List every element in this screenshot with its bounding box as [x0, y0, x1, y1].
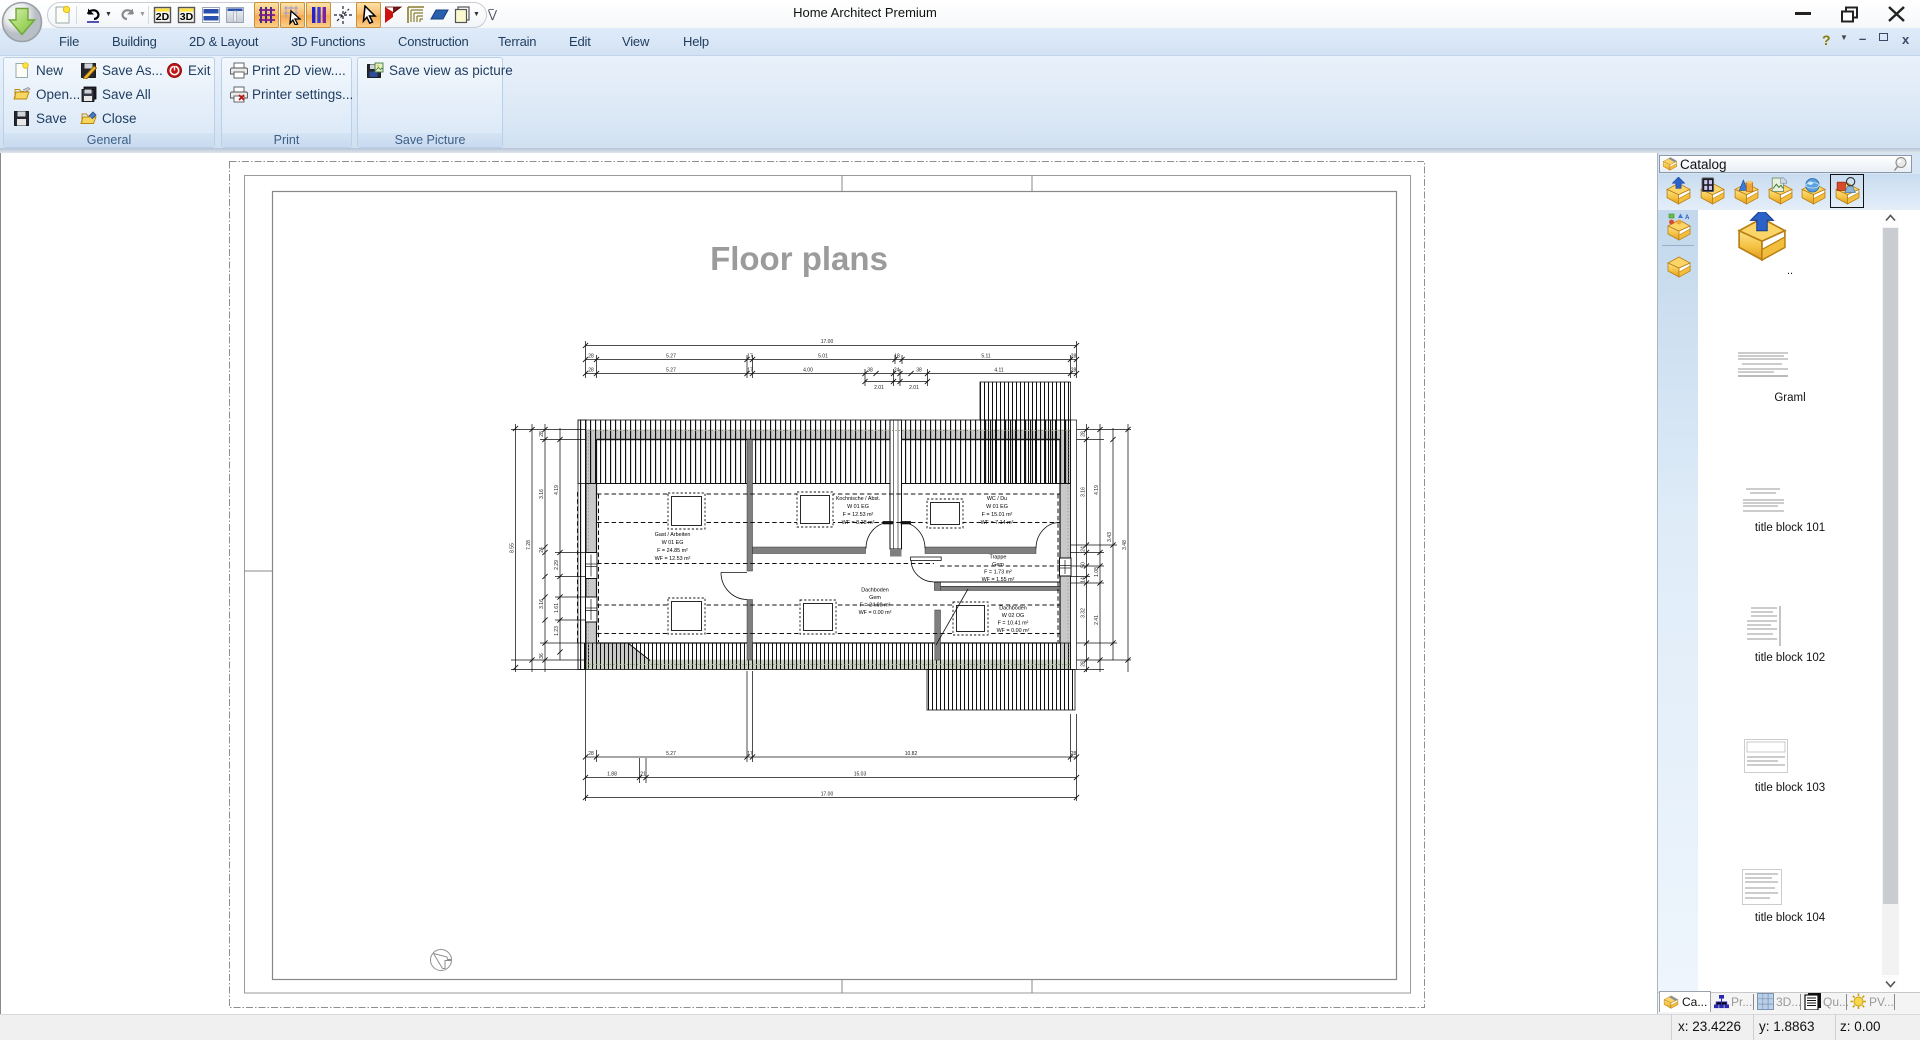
svg-text:4.11: 4.11: [994, 368, 1004, 374]
svg-text:24: 24: [539, 547, 545, 553]
svg-text:17: 17: [747, 368, 753, 374]
svg-text:WF = 1.55 m²: WF = 1.55 m²: [982, 577, 1015, 583]
svg-text:Dachboden: Dachboden: [999, 606, 1027, 612]
svg-text:WC / Du: WC / Du: [987, 496, 1007, 502]
svg-text:5.27: 5.27: [666, 354, 676, 360]
svg-text:2.01: 2.01: [909, 385, 919, 391]
svg-text:28: 28: [588, 354, 594, 360]
svg-text:2.01: 2.01: [874, 385, 884, 391]
svg-text:4.19: 4.19: [554, 485, 560, 495]
svg-text:18: 18: [894, 354, 900, 360]
svg-text:24: 24: [894, 368, 900, 374]
svg-text:3.16: 3.16: [1081, 487, 1087, 497]
svg-text:3.16: 3.16: [539, 599, 545, 609]
svg-text:F = 24.98 m²: F = 24.98 m²: [860, 603, 891, 609]
svg-text:1.61: 1.61: [554, 603, 560, 613]
svg-text:3.43: 3.43: [1107, 532, 1113, 542]
svg-text:F = 24.85 m²: F = 24.85 m²: [657, 548, 688, 554]
svg-text:W 01 EG: W 01 EG: [662, 540, 684, 546]
svg-text:24: 24: [1081, 546, 1087, 552]
svg-text:10.82: 10.82: [905, 751, 918, 757]
svg-text:28: 28: [1071, 354, 1077, 360]
svg-text:Kochnische / Abst.: Kochnische / Abst.: [836, 496, 880, 502]
svg-text:38: 38: [867, 368, 873, 374]
svg-text:38: 38: [916, 368, 922, 374]
svg-text:F = 12.53 m²: F = 12.53 m²: [843, 512, 874, 518]
svg-text:2D: 2D: [156, 11, 170, 23]
svg-text:W 01 EG: W 01 EG: [847, 504, 869, 510]
svg-text:3D: 3D: [180, 11, 194, 23]
svg-text:WF = 8.28 m²: WF = 8.28 m²: [842, 520, 875, 526]
svg-text:4.00: 4.00: [803, 368, 813, 374]
svg-text:3.32: 3.32: [1081, 608, 1087, 618]
svg-text:1.23: 1.23: [554, 626, 560, 636]
svg-text:5.27: 5.27: [666, 751, 676, 757]
svg-text:28: 28: [1081, 431, 1087, 437]
svg-text:17.00: 17.00: [821, 792, 834, 798]
svg-text:28: 28: [1071, 751, 1077, 757]
svg-text:21: 21: [640, 772, 646, 778]
svg-text:WF = 12.53 m²: WF = 12.53 m²: [655, 556, 691, 562]
svg-text:7.28: 7.28: [526, 540, 532, 550]
svg-text:WF = 0.00 m²: WF = 0.00 m²: [997, 628, 1030, 634]
svg-text:28: 28: [1071, 368, 1077, 374]
svg-text:15.03: 15.03: [854, 772, 867, 778]
svg-text:3.48: 3.48: [1122, 540, 1128, 550]
svg-text:W 02 OG: W 02 OG: [1002, 613, 1024, 619]
svg-text:Gem: Gem: [869, 595, 881, 601]
svg-text:Dachboden: Dachboden: [861, 588, 889, 594]
svg-text:8.55: 8.55: [510, 543, 516, 553]
svg-text:5.01: 5.01: [818, 354, 828, 360]
svg-text:28: 28: [588, 751, 594, 757]
svg-text:Gast / Arbeiten: Gast / Arbeiten: [655, 532, 691, 538]
svg-text:F = 15.01 m²: F = 15.01 m²: [982, 512, 1013, 518]
svg-text:Floor plans: Floor plans: [710, 240, 888, 277]
svg-text:14: 14: [1081, 577, 1087, 583]
svg-text:F = 10.41 m²: F = 10.41 m²: [998, 621, 1029, 627]
svg-text:WF = 7.14 m²: WF = 7.14 m²: [981, 520, 1014, 526]
svg-text:1.08: 1.08: [1094, 567, 1100, 577]
svg-text:17: 17: [747, 751, 753, 757]
svg-text:4.19: 4.19: [1094, 485, 1100, 495]
svg-text:17.00: 17.00: [821, 339, 834, 345]
svg-text:28: 28: [539, 431, 545, 437]
svg-text:Gem: Gem: [992, 562, 1004, 568]
svg-text:1.88: 1.88: [607, 772, 617, 778]
svg-text:2.41: 2.41: [1094, 615, 1100, 625]
svg-text:3.16: 3.16: [539, 489, 545, 499]
svg-text:WF = 0.00 m²: WF = 0.00 m²: [859, 610, 892, 616]
svg-text:F = 1.73 m²: F = 1.73 m²: [984, 570, 1012, 576]
svg-text:28: 28: [1081, 661, 1087, 667]
svg-text:28: 28: [588, 368, 594, 374]
svg-text:2.29: 2.29: [554, 560, 560, 570]
svg-text:36: 36: [539, 653, 545, 659]
svg-text:17: 17: [747, 354, 753, 360]
svg-text:5.11: 5.11: [981, 354, 991, 360]
svg-text:Trappe: Trappe: [990, 555, 1007, 561]
svg-text:5.27: 5.27: [666, 368, 676, 374]
svg-text:W 01 EG: W 01 EG: [986, 504, 1008, 510]
svg-text:50: 50: [1081, 562, 1087, 568]
svg-text:A: A: [1685, 215, 1690, 221]
